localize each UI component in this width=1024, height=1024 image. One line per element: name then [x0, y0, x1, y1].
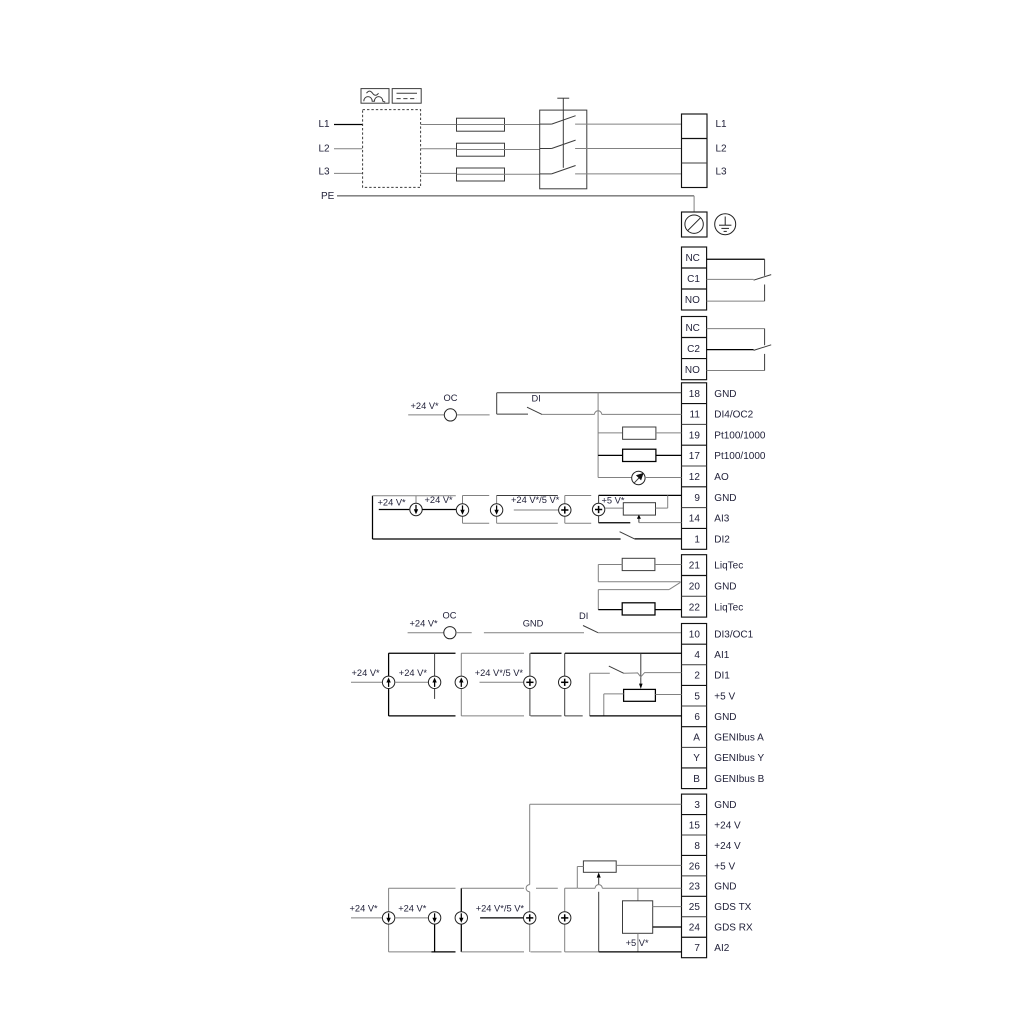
svg-text:GENIbus A: GENIbus A	[714, 733, 764, 744]
svg-text:9: 9	[694, 493, 700, 504]
svg-text:+24 V*: +24 V*	[410, 619, 439, 629]
svg-text:Pt100/1000: Pt100/1000	[714, 430, 766, 441]
svg-text:L3: L3	[716, 167, 728, 178]
svg-text:15: 15	[689, 820, 701, 831]
svg-text:NC: NC	[685, 253, 699, 264]
svg-text:+24 V*: +24 V*	[425, 495, 454, 505]
svg-text:20: 20	[689, 582, 701, 593]
svg-text:18: 18	[689, 389, 701, 400]
svg-text:L2: L2	[716, 144, 728, 155]
svg-text:C1: C1	[687, 274, 700, 285]
svg-text:NC: NC	[685, 323, 699, 334]
svg-text:LiqTec: LiqTec	[714, 561, 743, 572]
svg-text:DI3/OC1: DI3/OC1	[714, 629, 753, 640]
svg-text:GND: GND	[714, 389, 736, 400]
svg-text:+24 V: +24 V	[714, 820, 741, 831]
svg-text:L1: L1	[716, 119, 728, 130]
svg-text:B: B	[693, 774, 700, 785]
svg-text:GND: GND	[714, 582, 736, 593]
svg-text:L3: L3	[319, 167, 331, 178]
svg-text:DI4/OC2: DI4/OC2	[714, 410, 753, 421]
svg-text:+24 V*/5 V*: +24 V*/5 V*	[476, 903, 525, 913]
svg-text:25: 25	[689, 902, 701, 913]
svg-text:17: 17	[689, 451, 701, 462]
svg-text:+24 V*: +24 V*	[352, 668, 381, 678]
svg-text:+5 V: +5 V	[714, 861, 735, 872]
svg-text:GND: GND	[523, 619, 544, 629]
svg-text:+5 V: +5 V	[714, 691, 735, 702]
svg-text:GND: GND	[714, 493, 736, 504]
svg-text:22: 22	[689, 602, 701, 613]
svg-text:Y: Y	[693, 753, 700, 764]
svg-text:NO: NO	[685, 295, 700, 306]
svg-text:LiqTec: LiqTec	[714, 602, 743, 613]
svg-text:GENIbus B: GENIbus B	[714, 774, 764, 785]
svg-text:1: 1	[694, 534, 700, 545]
svg-text:26: 26	[689, 861, 701, 872]
svg-text:+24 V*: +24 V*	[378, 497, 407, 507]
svg-text:+5 V*: +5 V*	[626, 938, 649, 948]
svg-text:5: 5	[694, 691, 700, 702]
svg-text:AO: AO	[714, 472, 729, 483]
svg-text:11: 11	[690, 410, 701, 421]
svg-text:NO: NO	[685, 365, 700, 376]
svg-text:C2: C2	[687, 344, 700, 355]
svg-text:19: 19	[689, 430, 701, 441]
svg-text:DI2: DI2	[714, 534, 730, 545]
svg-text:+24 V*: +24 V*	[399, 668, 428, 678]
svg-text:+24 V*: +24 V*	[350, 903, 379, 913]
svg-text:4: 4	[694, 650, 700, 661]
svg-text:PE: PE	[321, 191, 335, 202]
svg-text:GDS RX: GDS RX	[714, 923, 753, 934]
svg-text:12: 12	[689, 472, 701, 483]
svg-text:14: 14	[689, 514, 701, 525]
svg-text:GND: GND	[714, 882, 736, 893]
svg-text:24: 24	[689, 923, 701, 934]
svg-text:GND: GND	[714, 800, 736, 811]
svg-text:Pt100/1000: Pt100/1000	[714, 451, 766, 462]
svg-text:+24 V: +24 V	[714, 841, 741, 852]
svg-text:AI1: AI1	[714, 650, 729, 661]
svg-text:L2: L2	[319, 144, 331, 155]
svg-text:DI: DI	[532, 393, 541, 403]
svg-text:GENIbus Y: GENIbus Y	[714, 753, 764, 764]
svg-text:+24 V*/5 V*: +24 V*/5 V*	[511, 495, 560, 505]
svg-text:DI: DI	[579, 611, 588, 621]
svg-text:6: 6	[694, 712, 700, 723]
svg-text:21: 21	[689, 561, 701, 572]
svg-text:3: 3	[694, 800, 700, 811]
svg-text:OC: OC	[444, 393, 458, 403]
svg-text:+24 V*/5 V*: +24 V*/5 V*	[475, 668, 524, 678]
svg-text:L1: L1	[319, 119, 331, 130]
svg-text:2: 2	[694, 671, 700, 682]
svg-text:+24 V*: +24 V*	[411, 401, 440, 411]
svg-text:A: A	[693, 733, 700, 744]
svg-text:GDS TX: GDS TX	[714, 902, 751, 913]
svg-text:DI1: DI1	[714, 671, 730, 682]
svg-text:AI2: AI2	[714, 943, 729, 954]
svg-text:23: 23	[689, 882, 701, 893]
svg-text:OC: OC	[443, 611, 457, 621]
svg-text:AI3: AI3	[714, 514, 729, 525]
svg-text:GND: GND	[714, 712, 736, 723]
svg-text:8: 8	[694, 841, 700, 852]
svg-text:+24 V*: +24 V*	[398, 903, 427, 913]
svg-text:10: 10	[689, 629, 701, 640]
svg-text:+5 V*: +5 V*	[602, 496, 625, 506]
svg-text:7: 7	[694, 943, 700, 954]
